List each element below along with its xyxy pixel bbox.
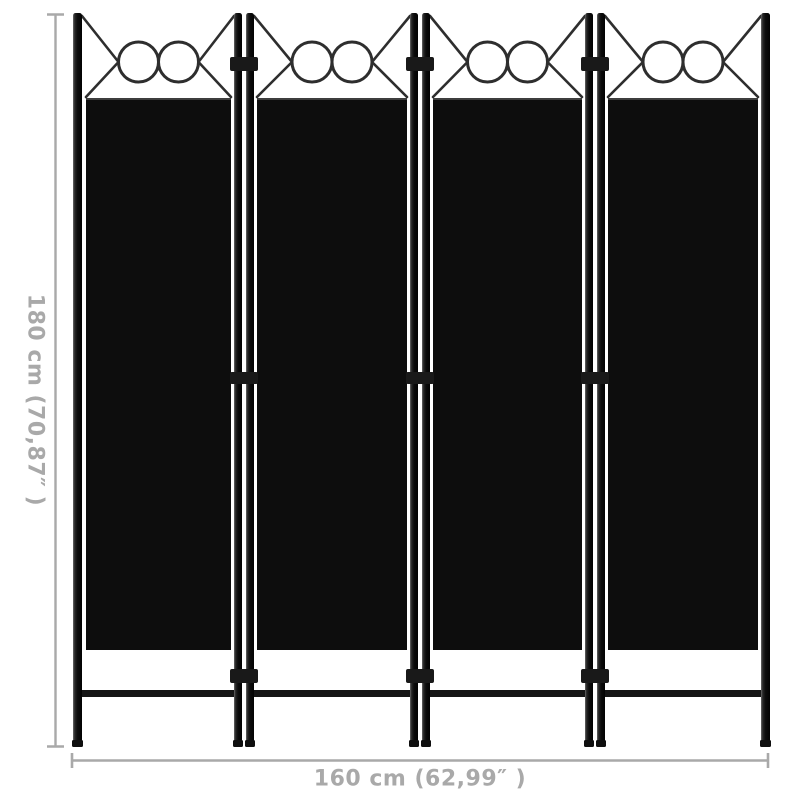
panel-3-ring-left: [468, 42, 508, 82]
foot: [72, 740, 83, 747]
foot: [596, 740, 606, 747]
feet: [72, 740, 771, 747]
panel-2-ring-right: [332, 42, 372, 82]
panel-4-ring-right: [683, 42, 723, 82]
panel-1-fabric: [86, 98, 231, 650]
panel-1-leg-crossbar: [77, 690, 242, 697]
hinge-2-middle: [406, 372, 434, 384]
panel-3-fabric: [433, 98, 582, 650]
hinge-3-middle: [581, 372, 609, 384]
dimension-height-label: 180 cm (70,87″ ): [23, 294, 48, 506]
foot: [409, 740, 419, 747]
panel-3-fabric-edge: [433, 98, 582, 100]
hinge-1-top: [230, 57, 258, 71]
hinge-2-bottom: [406, 669, 434, 683]
panel-1-ring-right: [159, 42, 199, 82]
hinge-1-middle: [230, 372, 258, 384]
pole-outer-left: [73, 13, 82, 743]
panel-4: [601, 16, 767, 697]
hinge-1-bottom: [230, 669, 258, 683]
panel-4-fabric: [608, 98, 758, 650]
dimension-width-label: 160 cm (62,99″ ): [314, 767, 526, 792]
panel-4-leg-crossbar: [601, 690, 767, 697]
panel-2-fabric: [257, 98, 407, 650]
panel-2-leg-crossbar: [250, 690, 418, 697]
panel-2: [250, 16, 418, 697]
hinge-3-top: [581, 57, 609, 71]
hinge-2-top: [406, 57, 434, 71]
panel-2-fabric-edge: [257, 98, 407, 100]
room-divider-figure: [0, 0, 800, 800]
panel-1-fabric-edge: [86, 98, 231, 100]
foot: [760, 740, 771, 747]
hinge-3-bottom: [581, 669, 609, 683]
panel-1-ring-left: [119, 42, 159, 82]
foot: [233, 740, 243, 747]
foot: [421, 740, 431, 747]
panel-3-ring-right: [508, 42, 548, 82]
panel-3: [426, 16, 593, 697]
panel-2-ring-left: [292, 42, 332, 82]
panel-4-fabric-edge: [608, 98, 758, 100]
foot: [584, 740, 594, 747]
panel-4-ring-left: [643, 42, 683, 82]
pole-outer-right: [761, 13, 770, 743]
dimension-height-line: [47, 15, 64, 747]
panel-1: [77, 16, 242, 697]
panel-3-leg-crossbar: [426, 690, 593, 697]
foot: [245, 740, 255, 747]
product-image: 180 cm (70,87″ ) 160 cm (62,99″ ): [0, 0, 800, 800]
